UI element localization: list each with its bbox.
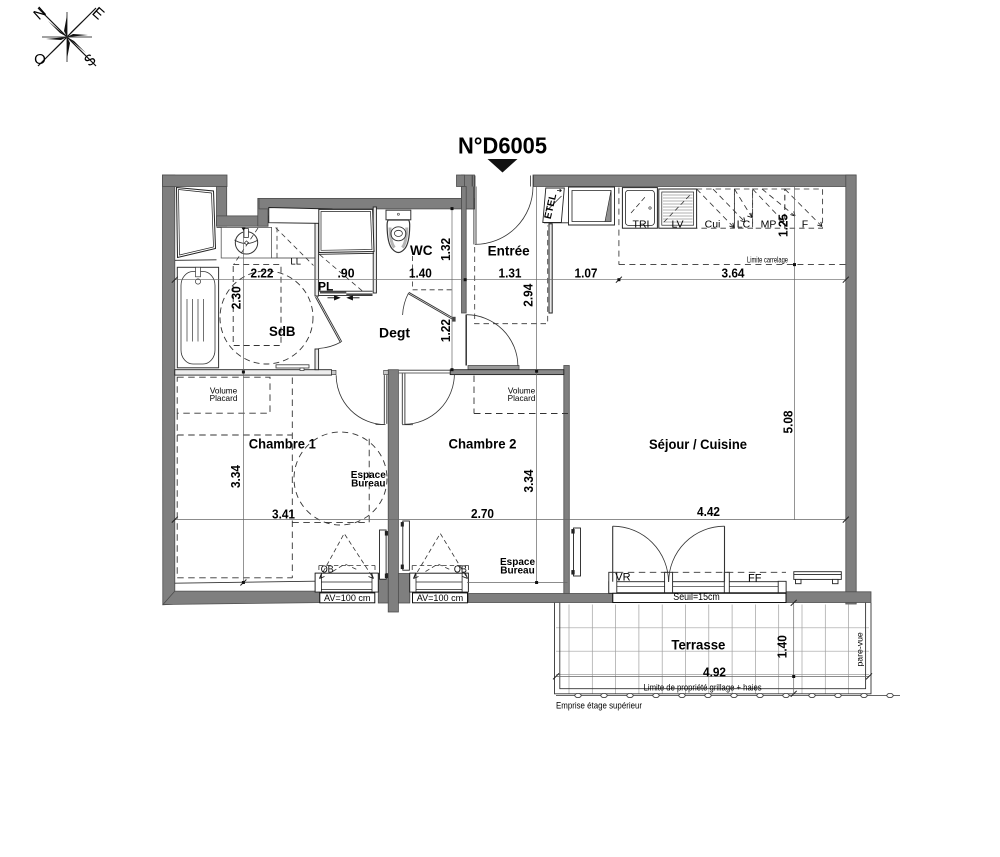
- svg-text:3.34: 3.34: [228, 464, 243, 488]
- svg-text:FF: FF: [748, 573, 762, 585]
- svg-text:VR: VR: [615, 571, 630, 583]
- svg-text:.90: .90: [338, 265, 355, 280]
- svg-text:O: O: [34, 51, 46, 68]
- svg-text:3.64: 3.64: [722, 265, 746, 280]
- svg-text:Placard: Placard: [210, 394, 238, 403]
- svg-text:Entrée: Entrée: [488, 243, 530, 258]
- svg-text:LL: LL: [290, 257, 301, 268]
- svg-text:4.42: 4.42: [697, 504, 720, 519]
- svg-text:PL: PL: [318, 280, 333, 294]
- svg-text:5.08: 5.08: [781, 411, 796, 434]
- svg-text:4.92: 4.92: [703, 664, 726, 679]
- svg-text:Séjour / Cuisine: Séjour / Cuisine: [649, 437, 747, 452]
- svg-text:Bureau: Bureau: [500, 566, 534, 577]
- svg-text:Degt: Degt: [379, 325, 411, 340]
- svg-text:2.70: 2.70: [471, 506, 494, 521]
- svg-text:Emprise étage supérieur: Emprise étage supérieur: [556, 701, 642, 712]
- svg-text:3.34: 3.34: [521, 469, 536, 493]
- svg-text:Seuil=15cm: Seuil=15cm: [673, 592, 720, 603]
- svg-text:1.40: 1.40: [775, 635, 790, 658]
- svg-text:1.31: 1.31: [499, 265, 522, 280]
- svg-text:Bureau: Bureau: [351, 479, 385, 490]
- svg-text:Limite de propriété grillage +: Limite de propriété grillage + haies: [644, 683, 762, 694]
- svg-text:Placard: Placard: [508, 394, 536, 403]
- svg-text:1.22: 1.22: [438, 319, 453, 342]
- svg-text:Chambre 2: Chambre 2: [449, 437, 517, 452]
- svg-text:2.94: 2.94: [521, 283, 536, 307]
- svg-text:AV=100 cm: AV=100 cm: [417, 593, 464, 603]
- svg-text:WC: WC: [410, 243, 433, 258]
- svg-text:SdB: SdB: [269, 324, 296, 339]
- svg-text:OB: OB: [454, 563, 467, 575]
- svg-text:F: F: [802, 218, 808, 230]
- svg-text:3.41: 3.41: [272, 506, 295, 521]
- svg-text:1.07: 1.07: [575, 265, 598, 280]
- svg-text:AV=100 cm: AV=100 cm: [324, 593, 371, 603]
- svg-text:pare-vue: pare-vue: [855, 632, 865, 666]
- svg-text:Cui: Cui: [705, 218, 721, 230]
- svg-text:LC: LC: [737, 218, 751, 230]
- svg-text:LV: LV: [671, 218, 683, 230]
- svg-text:1.25: 1.25: [776, 214, 791, 237]
- svg-text:Limite carrelage: Limite carrelage: [747, 255, 788, 265]
- svg-text:2.22: 2.22: [251, 265, 274, 280]
- svg-text:N°D6005: N°D6005: [458, 133, 547, 159]
- svg-text:MP: MP: [761, 218, 777, 230]
- svg-text:1.32: 1.32: [438, 238, 453, 261]
- svg-text:2.30: 2.30: [229, 286, 244, 309]
- svg-text:Terrasse: Terrasse: [671, 638, 725, 653]
- svg-text:OB: OB: [321, 563, 334, 575]
- svg-text:Chambre 1: Chambre 1: [249, 437, 316, 452]
- svg-text:1.40: 1.40: [409, 265, 432, 280]
- svg-text:TRI: TRI: [633, 218, 650, 230]
